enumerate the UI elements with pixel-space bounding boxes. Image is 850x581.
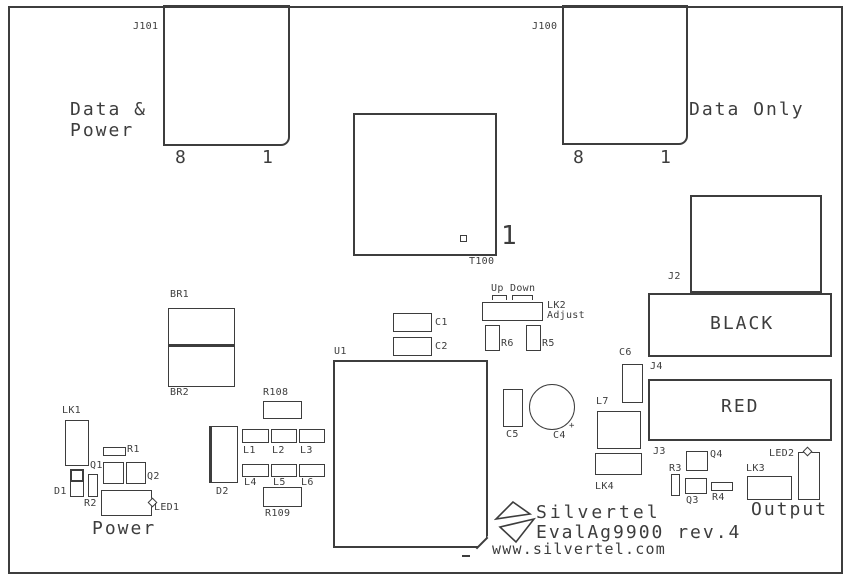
r5-ref: R5: [542, 338, 555, 349]
j101-ref: J101: [133, 21, 158, 32]
br2-ref: BR2: [170, 387, 189, 398]
r5-resistor: [526, 325, 541, 351]
u1-ref: U1: [334, 346, 347, 357]
j2-ref: J2: [668, 271, 681, 282]
j101-connector: [163, 5, 290, 146]
c4-polarity-mark: +: [569, 422, 574, 432]
r4-resistor: [711, 482, 733, 491]
l1-ref: L1: [243, 445, 256, 456]
q3-ref: Q3: [686, 495, 699, 506]
l7-inductor: [597, 411, 641, 449]
c5-ref: C5: [506, 429, 519, 440]
l5-inductor: [271, 464, 297, 477]
q1-transistor: [103, 462, 124, 484]
lk2-adjust-caption: Adjust: [547, 310, 585, 321]
r1-ref: R1: [127, 444, 140, 455]
q1-ref: Q1: [90, 460, 103, 471]
l3-inductor: [299, 429, 325, 443]
down-jumper-bracket: [512, 295, 533, 300]
r1-resistor: [103, 447, 126, 456]
led2-ref: LED2: [769, 448, 794, 459]
r2-ref: R2: [84, 498, 97, 509]
up-jumper-bracket: [492, 295, 507, 300]
l4-ref: L4: [244, 477, 257, 488]
r3-resistor: [671, 474, 680, 496]
r3-ref: R3: [669, 463, 682, 474]
l4-inductor: [242, 464, 269, 477]
j101-pin8: 8: [175, 148, 188, 168]
l2-inductor: [271, 429, 297, 443]
br1-bridge: [168, 308, 235, 347]
t100-transformer: [353, 113, 497, 256]
q2-transistor: [126, 462, 146, 484]
q3-transistor: [685, 478, 707, 494]
q4-ref: Q4: [710, 449, 723, 460]
r2-resistor: [88, 474, 98, 497]
br1-ref: BR1: [170, 289, 189, 300]
j2-connector: [690, 195, 822, 293]
t100-pin1-num: 1: [501, 222, 518, 251]
q4-transistor: [686, 451, 708, 471]
lk4-ref: LK4: [595, 481, 614, 492]
output-caption: Output: [751, 500, 828, 520]
r108-ref: R108: [263, 387, 288, 398]
pcb-silkscreen-diagram: Silvertel EvalAg9900 rev.4 www.silvertel…: [0, 0, 850, 581]
led1-ref: LED1: [154, 502, 179, 513]
c2-ref: C2: [435, 341, 448, 352]
l7-ref: L7: [596, 396, 609, 407]
l5-ref: L5: [273, 477, 286, 488]
j100-pin8: 8: [573, 148, 586, 168]
l1-inductor: [242, 429, 269, 443]
lk3-jumper: [747, 476, 792, 500]
data-power-caption-line1: Data &: [70, 100, 147, 120]
c1-ref: C1: [435, 317, 448, 328]
j100-connector: [562, 5, 688, 145]
down-caption: Down: [510, 283, 535, 294]
d1-cathode-band: [70, 469, 84, 482]
r6-resistor: [485, 325, 500, 351]
j4-ref: J4: [650, 361, 663, 372]
q2-ref: Q2: [147, 471, 160, 482]
j3-ref: J3: [653, 446, 666, 457]
j100-ref: J100: [532, 21, 557, 32]
br2-bridge: [168, 346, 235, 387]
power-caption: Power: [92, 519, 156, 539]
t100-ref: T100: [469, 256, 494, 267]
u1-pin-mark: [462, 555, 470, 557]
r109-ref: R109: [265, 508, 290, 519]
c2-capacitor: [393, 337, 432, 356]
r6-ref: R6: [501, 338, 514, 349]
led1: [101, 490, 152, 516]
black-caption: BLACK: [710, 314, 774, 334]
l6-inductor: [299, 464, 325, 477]
lk3-ref: LK3: [746, 463, 765, 474]
lk2-jumper: [482, 302, 543, 321]
c4-ref: C4: [553, 430, 566, 441]
t100-pin1-marker: [460, 235, 467, 242]
d1-ref: D1: [54, 486, 67, 497]
c5-capacitor: [503, 389, 523, 427]
u1-ic: [333, 360, 488, 548]
lk1-ref: LK1: [62, 405, 81, 416]
data-only-caption: Data Only: [689, 100, 805, 120]
data-power-caption-line2: Power: [70, 121, 134, 141]
r109-resistor: [263, 487, 302, 507]
r4-ref: R4: [712, 492, 725, 503]
c6-ref: C6: [619, 347, 632, 358]
j101-pin1: 1: [262, 148, 275, 168]
r108-resistor: [263, 401, 302, 419]
lk4-jumper: [595, 453, 642, 475]
l3-ref: L3: [300, 445, 313, 456]
c1-capacitor: [393, 313, 432, 332]
red-caption: RED: [721, 397, 760, 417]
l2-ref: L2: [272, 445, 285, 456]
j100-pin1: 1: [660, 148, 673, 168]
led2: [798, 452, 820, 500]
d2-ref: D2: [216, 486, 229, 497]
c6-capacitor: [622, 364, 643, 403]
d2-diode: [209, 426, 238, 483]
l6-ref: L6: [301, 477, 314, 488]
lk1-jumper: [65, 420, 89, 466]
up-caption: Up: [491, 283, 504, 294]
